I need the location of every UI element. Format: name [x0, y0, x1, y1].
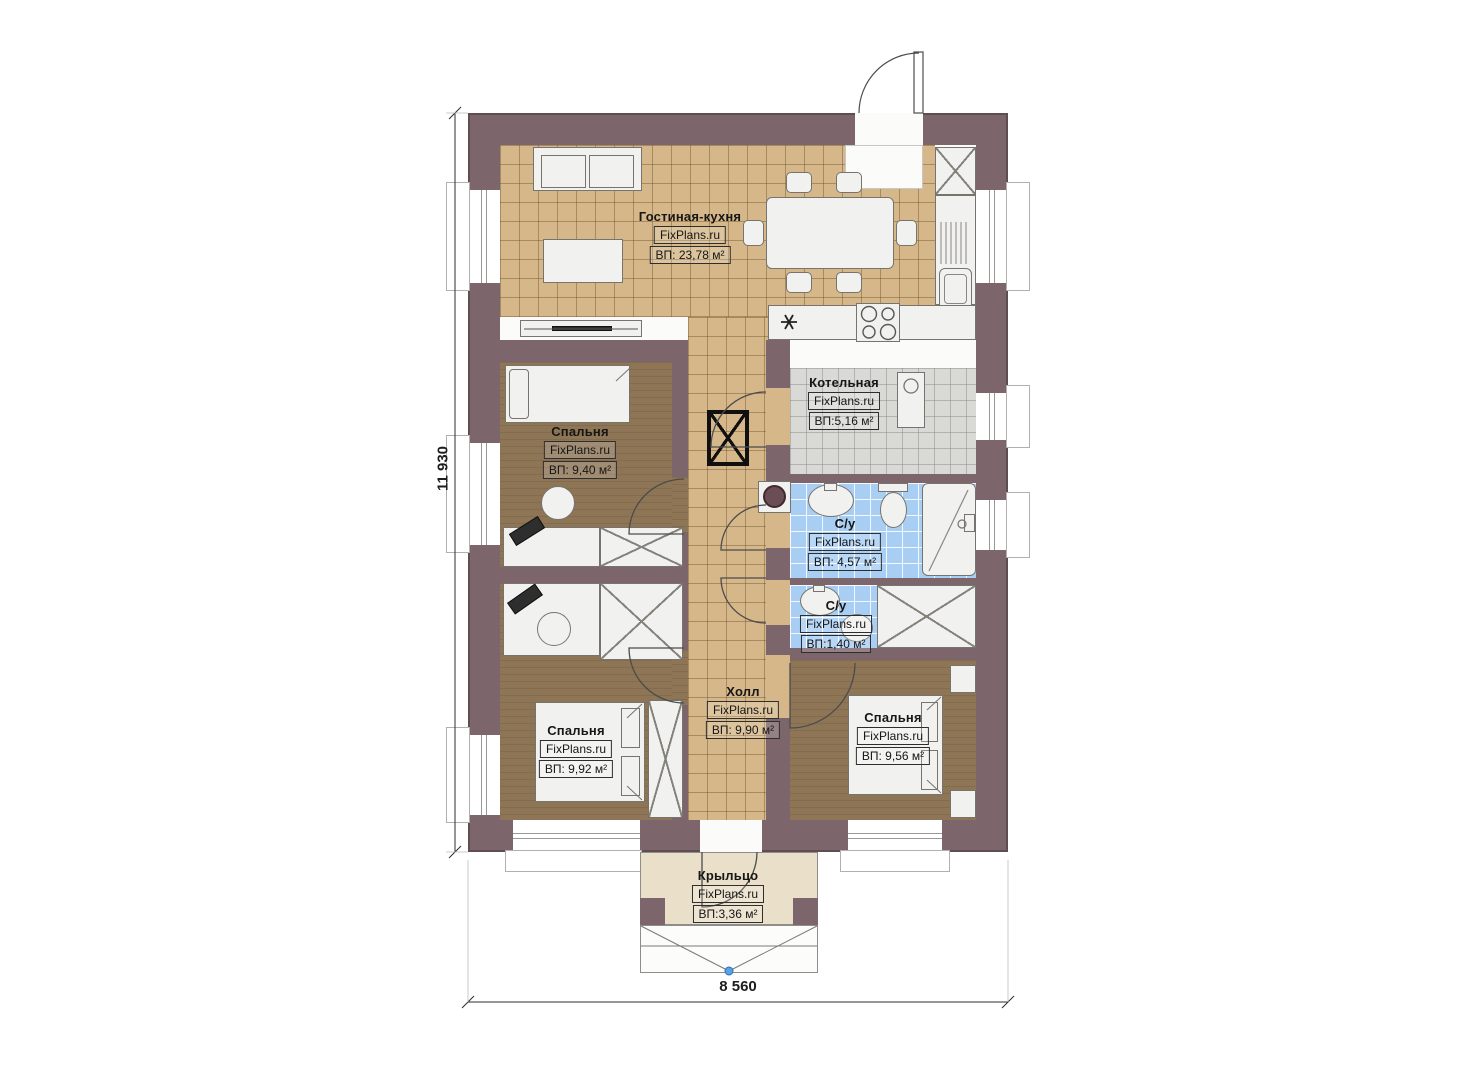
- tv: [552, 326, 612, 331]
- toilet-bowl: [880, 492, 907, 528]
- watermark: FixPlans.ru: [800, 615, 872, 633]
- wardrobe-bedroom2-inner: [600, 583, 683, 660]
- kitchen-sink-basin: [944, 274, 967, 304]
- wardrobe-hall: [877, 585, 976, 648]
- room-area: ВП: 9,56 м²: [856, 747, 930, 765]
- window-bath-right: [976, 500, 1008, 550]
- window-living-left: [468, 190, 500, 283]
- wall-hall-right-c: [766, 548, 790, 580]
- room-area: ВП:1,40 м²: [801, 635, 872, 653]
- room-area: ВП:3,36 м²: [693, 905, 764, 923]
- wall-bath-bath: [790, 578, 976, 585]
- watermark: FixPlans.ru: [857, 727, 929, 745]
- room-area: ВП: 9,92 м²: [539, 760, 613, 778]
- stove: [856, 303, 900, 342]
- fridge: [935, 147, 976, 195]
- coffee-table: [543, 239, 623, 283]
- watermark: FixPlans.ru: [540, 740, 612, 758]
- dining-chair: [896, 220, 917, 246]
- bath-small-sink-faucet: [813, 585, 825, 592]
- wall-hall-right-a: [766, 340, 790, 388]
- room-name: Спальня: [551, 424, 609, 439]
- window-bedroom2-bottom: [513, 820, 640, 852]
- tv-console: [520, 320, 642, 337]
- porch-pillar-right: [793, 898, 818, 925]
- window-bedroom3-bottom: [848, 820, 942, 852]
- sill-bedroom2-bottom: [505, 850, 642, 872]
- dining-table: [766, 197, 894, 269]
- ventilation-shaft: [707, 410, 749, 466]
- sofa: [533, 147, 642, 191]
- wall-bedroom1-bedroom2: [500, 567, 672, 583]
- sofa-cushion: [589, 155, 634, 188]
- nightstand: [950, 665, 976, 693]
- sill-bath-right: [1006, 492, 1030, 558]
- window-bedroom1-left: [468, 443, 500, 545]
- watermark: FixPlans.ru: [707, 701, 779, 719]
- dimension-width-label: 8 560: [693, 978, 783, 995]
- sofa-cushion: [541, 155, 586, 188]
- sill-bedroom3-bottom: [840, 850, 950, 872]
- watermark: FixPlans.ru: [544, 441, 616, 459]
- floor-plan: Гостиная-кухня FixPlans.ru ВП: 23,78 м² …: [0, 0, 1474, 1080]
- room-label-boiler: Котельная FixPlans.ru ВП:5,16 м²: [808, 375, 880, 430]
- watermark: FixPlans.ru: [692, 885, 764, 903]
- sill-kitchen-right: [1006, 182, 1030, 291]
- room-label-bedroom-bottom-right: Спальня FixPlans.ru ВП: 9,56 м²: [856, 710, 930, 765]
- door-gap-entrance: [855, 113, 923, 145]
- shower-mixer: [964, 514, 975, 532]
- room-area: ВП:5,16 м²: [809, 412, 880, 430]
- dining-chair: [786, 272, 812, 293]
- hall-floor: [688, 317, 768, 820]
- window-kitchen-right: [976, 190, 1008, 283]
- room-label-bedroom-top-left: Спальня FixPlans.ru ВП: 9,40 м²: [543, 424, 617, 479]
- porch-pillar-left: [640, 898, 665, 925]
- room-label-porch: Крыльцо FixPlans.ru ВП:3,36 м²: [692, 868, 764, 923]
- room-name: Котельная: [809, 375, 879, 390]
- wardrobe-bedroom2: [648, 700, 683, 818]
- room-name: Холл: [726, 684, 759, 699]
- dining-chair: [743, 220, 764, 246]
- sill-bedroom2-left: [446, 727, 470, 823]
- kitchen-sink: [939, 268, 972, 310]
- dining-chair: [786, 172, 812, 193]
- sill-living-left: [446, 182, 470, 291]
- wall-living-bedroom1: [500, 340, 688, 362]
- stool-strip: [790, 340, 976, 368]
- dining-chair: [836, 272, 862, 293]
- pillow: [509, 369, 529, 419]
- door-gap-bath-small: [766, 580, 790, 625]
- office-chair: [541, 486, 575, 520]
- room-name: Спальня: [547, 723, 605, 738]
- wardrobe-bedroom1: [600, 527, 683, 567]
- wall-hall-left-a: [672, 362, 688, 477]
- bed-single: [505, 365, 630, 423]
- watermark: FixPlans.ru: [809, 533, 881, 551]
- bath-large-sink-faucet: [824, 483, 837, 491]
- entrance-door: [859, 52, 923, 113]
- dining-chair: [836, 172, 862, 193]
- door-gap-porch: [700, 820, 762, 852]
- office-chair: [537, 612, 571, 646]
- room-area: ВП: 4,57 м²: [808, 553, 882, 571]
- room-label-bedroom-bottom-left: Спальня FixPlans.ru ВП: 9,92 м²: [539, 723, 613, 778]
- room-label-living-kitchen: Гостиная-кухня FixPlans.ru ВП: 23,78 м²: [639, 209, 741, 264]
- dimension-height-label: 11 930: [435, 424, 452, 514]
- porch-steps: [640, 925, 818, 973]
- pillow: [621, 756, 640, 796]
- room-name: Спальня: [864, 710, 922, 725]
- door-gap-boiler: [766, 388, 790, 445]
- wall-hall-right-d: [766, 625, 790, 655]
- room-name: Гостиная-кухня: [639, 209, 741, 224]
- watermark: FixPlans.ru: [808, 392, 880, 410]
- room-label-hall: Холл FixPlans.ru ВП: 9,90 м²: [706, 684, 780, 739]
- room-area: ВП: 9,90 м²: [706, 721, 780, 739]
- boiler-unit: [897, 372, 925, 428]
- door-gap-bath-large: [766, 508, 790, 548]
- nightstand: [950, 790, 976, 818]
- wall-boiler-bath: [790, 474, 976, 483]
- room-name: С/у: [835, 516, 856, 531]
- door-gap-bedroom1: [672, 477, 688, 532]
- room-label-bath-small: С/у FixPlans.ru ВП:1,40 м²: [800, 598, 872, 653]
- sill-boiler-right: [1006, 385, 1030, 448]
- room-area: ВП: 9,40 м²: [543, 461, 617, 479]
- room-area: ВП: 23,78 м²: [650, 246, 731, 264]
- watermark: FixPlans.ru: [654, 226, 726, 244]
- room-label-bath-large: С/у FixPlans.ru ВП: 4,57 м²: [808, 516, 882, 571]
- toilet-tank: [878, 483, 908, 492]
- room-name: С/у: [826, 598, 847, 613]
- window-boiler-right: [976, 393, 1008, 440]
- room-name: Крыльцо: [698, 868, 759, 883]
- water-heater-drum: [763, 485, 786, 508]
- window-bedroom2-left: [468, 735, 500, 815]
- pillow: [621, 708, 640, 748]
- water-heater: [758, 481, 791, 513]
